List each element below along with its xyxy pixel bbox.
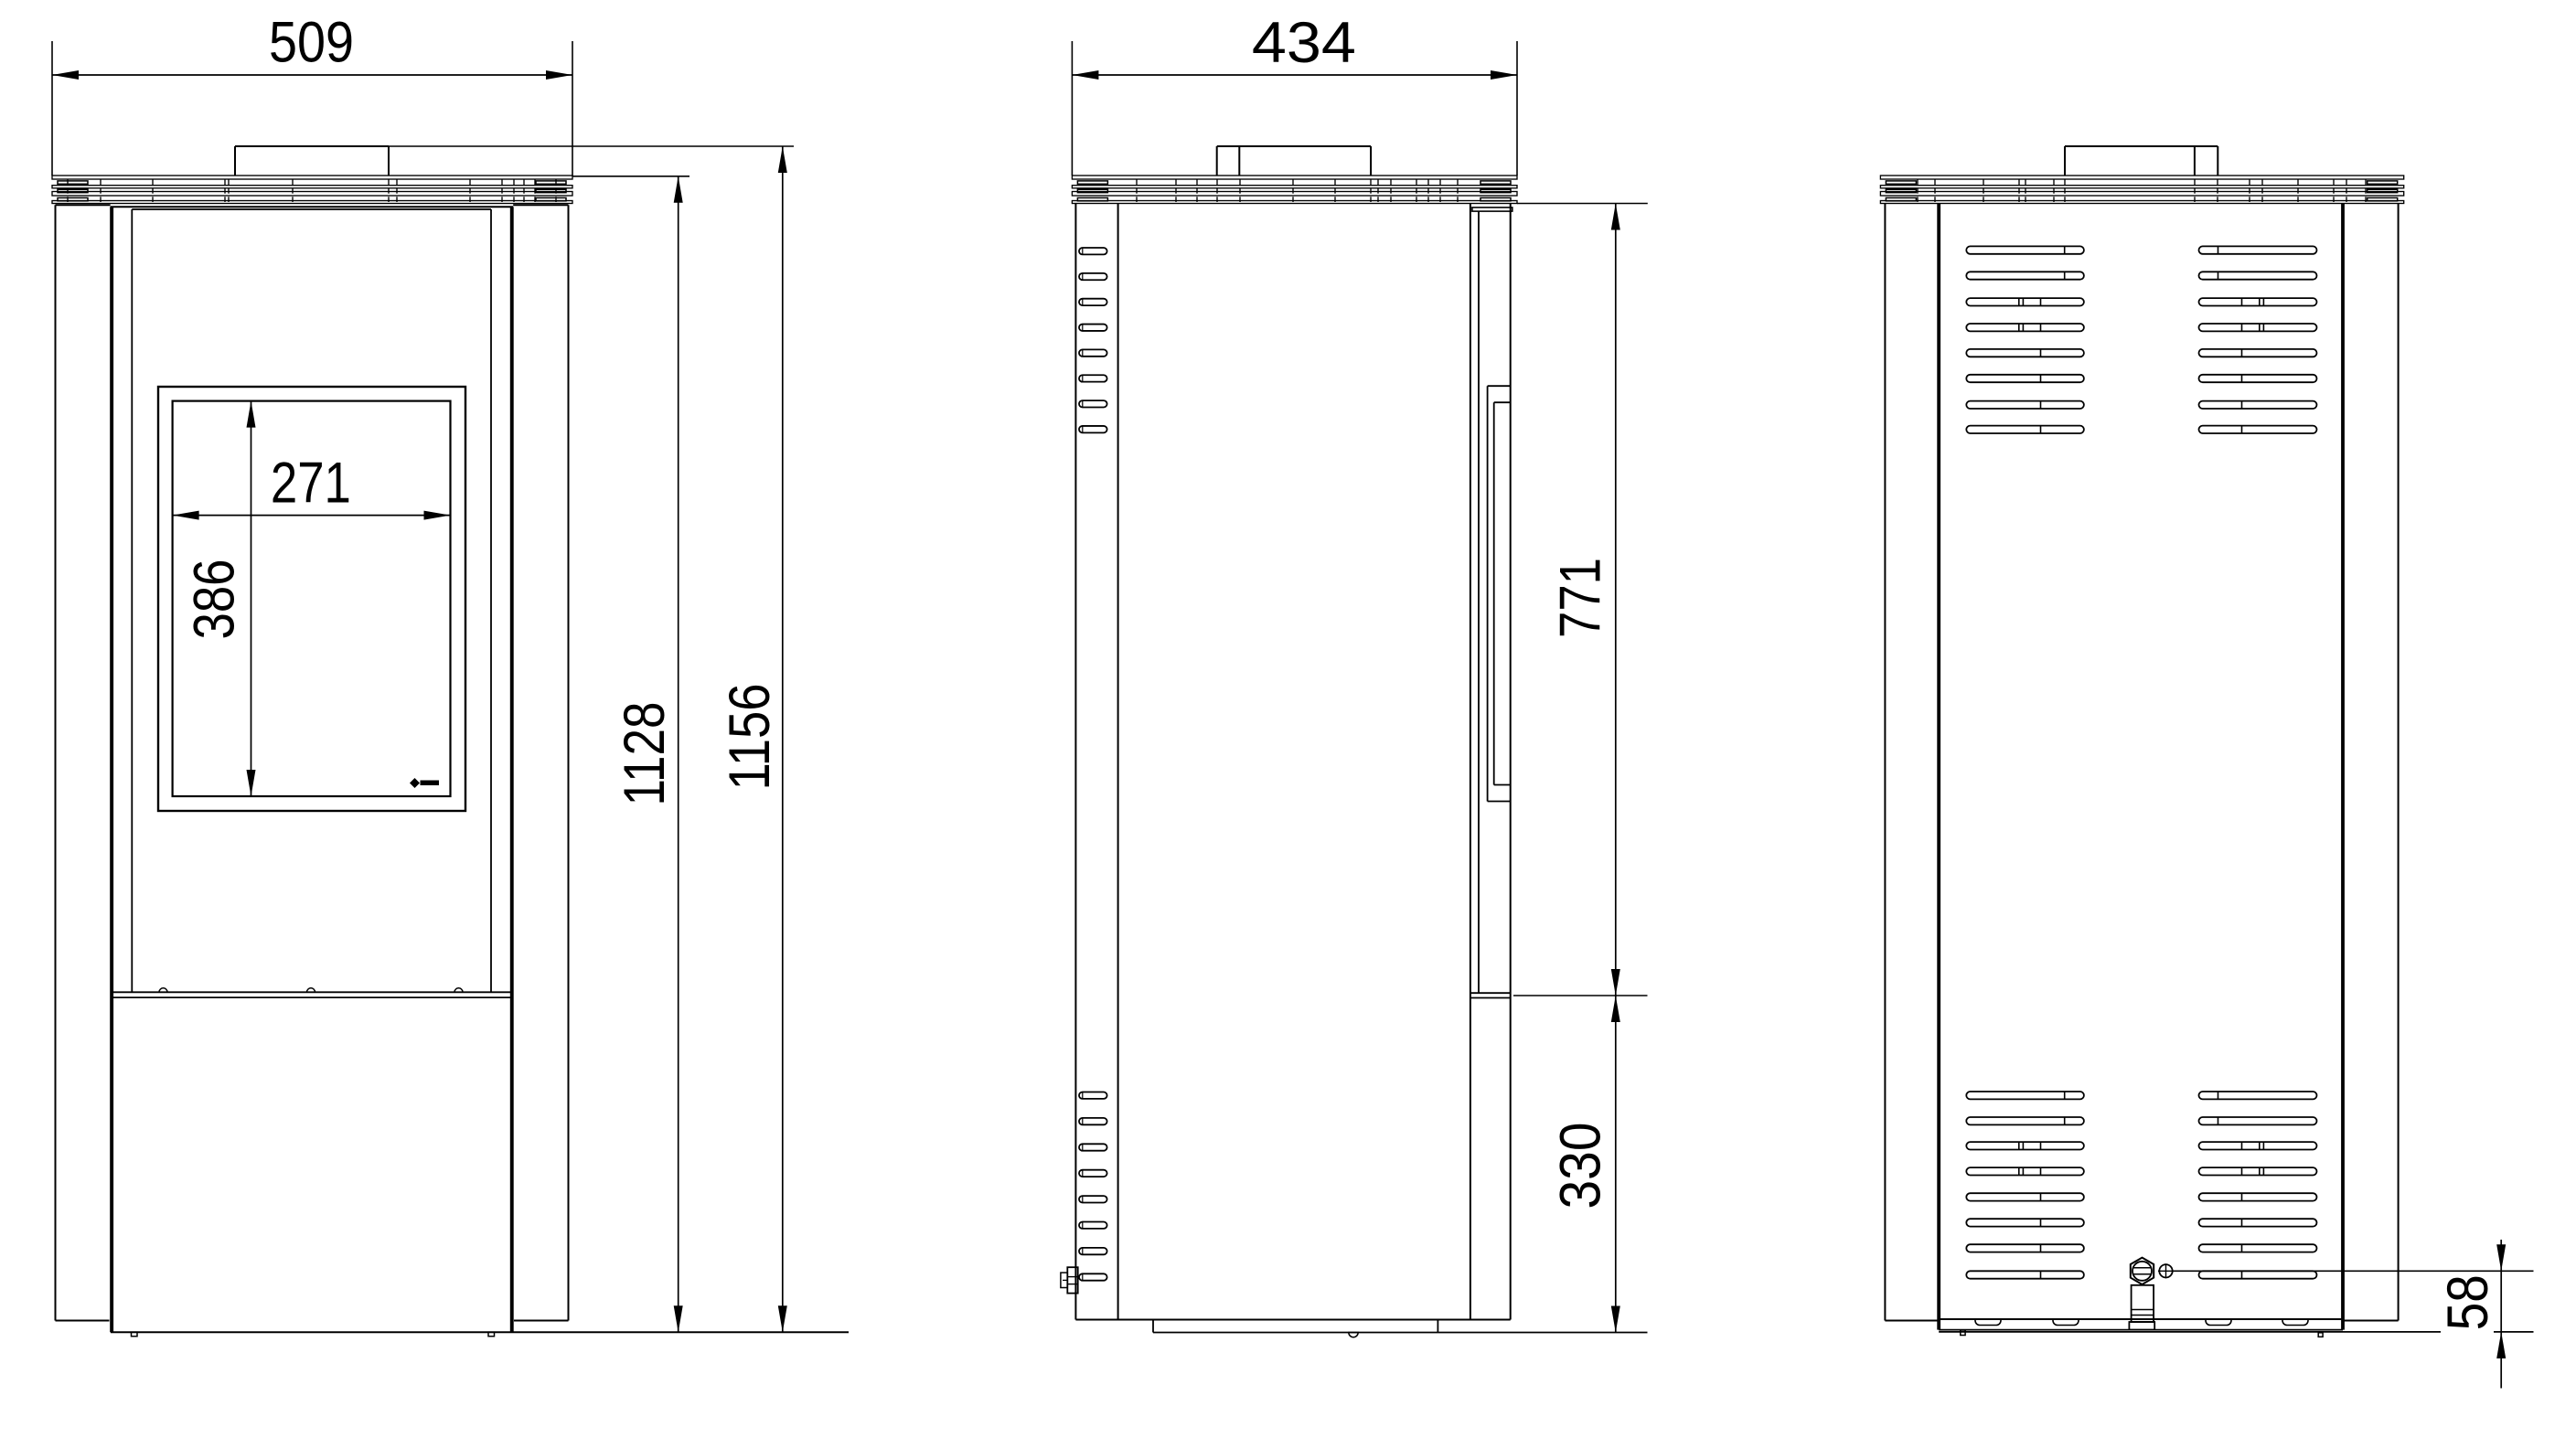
svg-text:330: 330 <box>1549 1123 1613 1209</box>
svg-text:1156: 1156 <box>718 684 782 791</box>
svg-text:434: 434 <box>1252 11 1356 75</box>
svg-text:271: 271 <box>271 451 351 515</box>
svg-text:771: 771 <box>1549 558 1613 638</box>
svg-text:58: 58 <box>2436 1274 2500 1330</box>
svg-text:509: 509 <box>269 11 354 75</box>
svg-text:386: 386 <box>183 559 247 640</box>
svg-text:1128: 1128 <box>613 702 677 806</box>
